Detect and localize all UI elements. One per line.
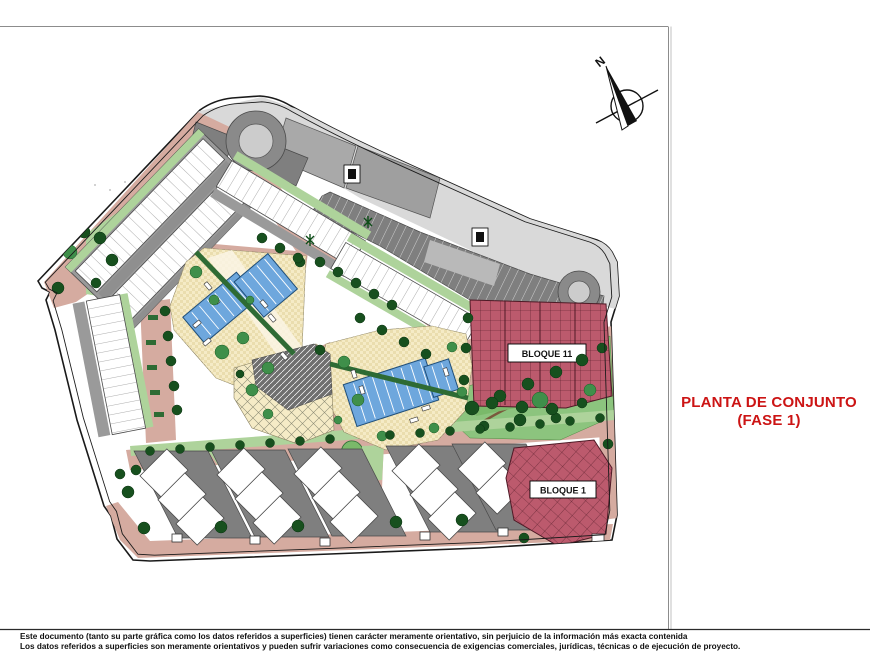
plan-sheet: N — [0, 0, 870, 652]
drawing-title: PLANTA DE CONJUNTO (FASE 1) — [668, 394, 870, 431]
bloque-11-label: BLOQUE 11 — [522, 349, 573, 359]
roundabout-west — [226, 111, 286, 171]
disclaimer-line1: Este documento (tanto su parte gráfica c… — [20, 632, 860, 642]
site-plan-drawing: N — [0, 0, 870, 652]
disclaimer-line2: Los datos referidos a superficies son me… — [20, 642, 860, 652]
north-compass: N — [593, 54, 658, 130]
north-label: N — [593, 54, 608, 70]
bloque-1-label: BLOQUE 1 — [540, 486, 586, 496]
drawing-title-line1: PLANTA DE CONJUNTO — [668, 394, 870, 412]
disclaimer: Este documento (tanto su parte gráfica c… — [20, 632, 860, 652]
drawing-title-line2: (FASE 1) — [668, 412, 870, 430]
